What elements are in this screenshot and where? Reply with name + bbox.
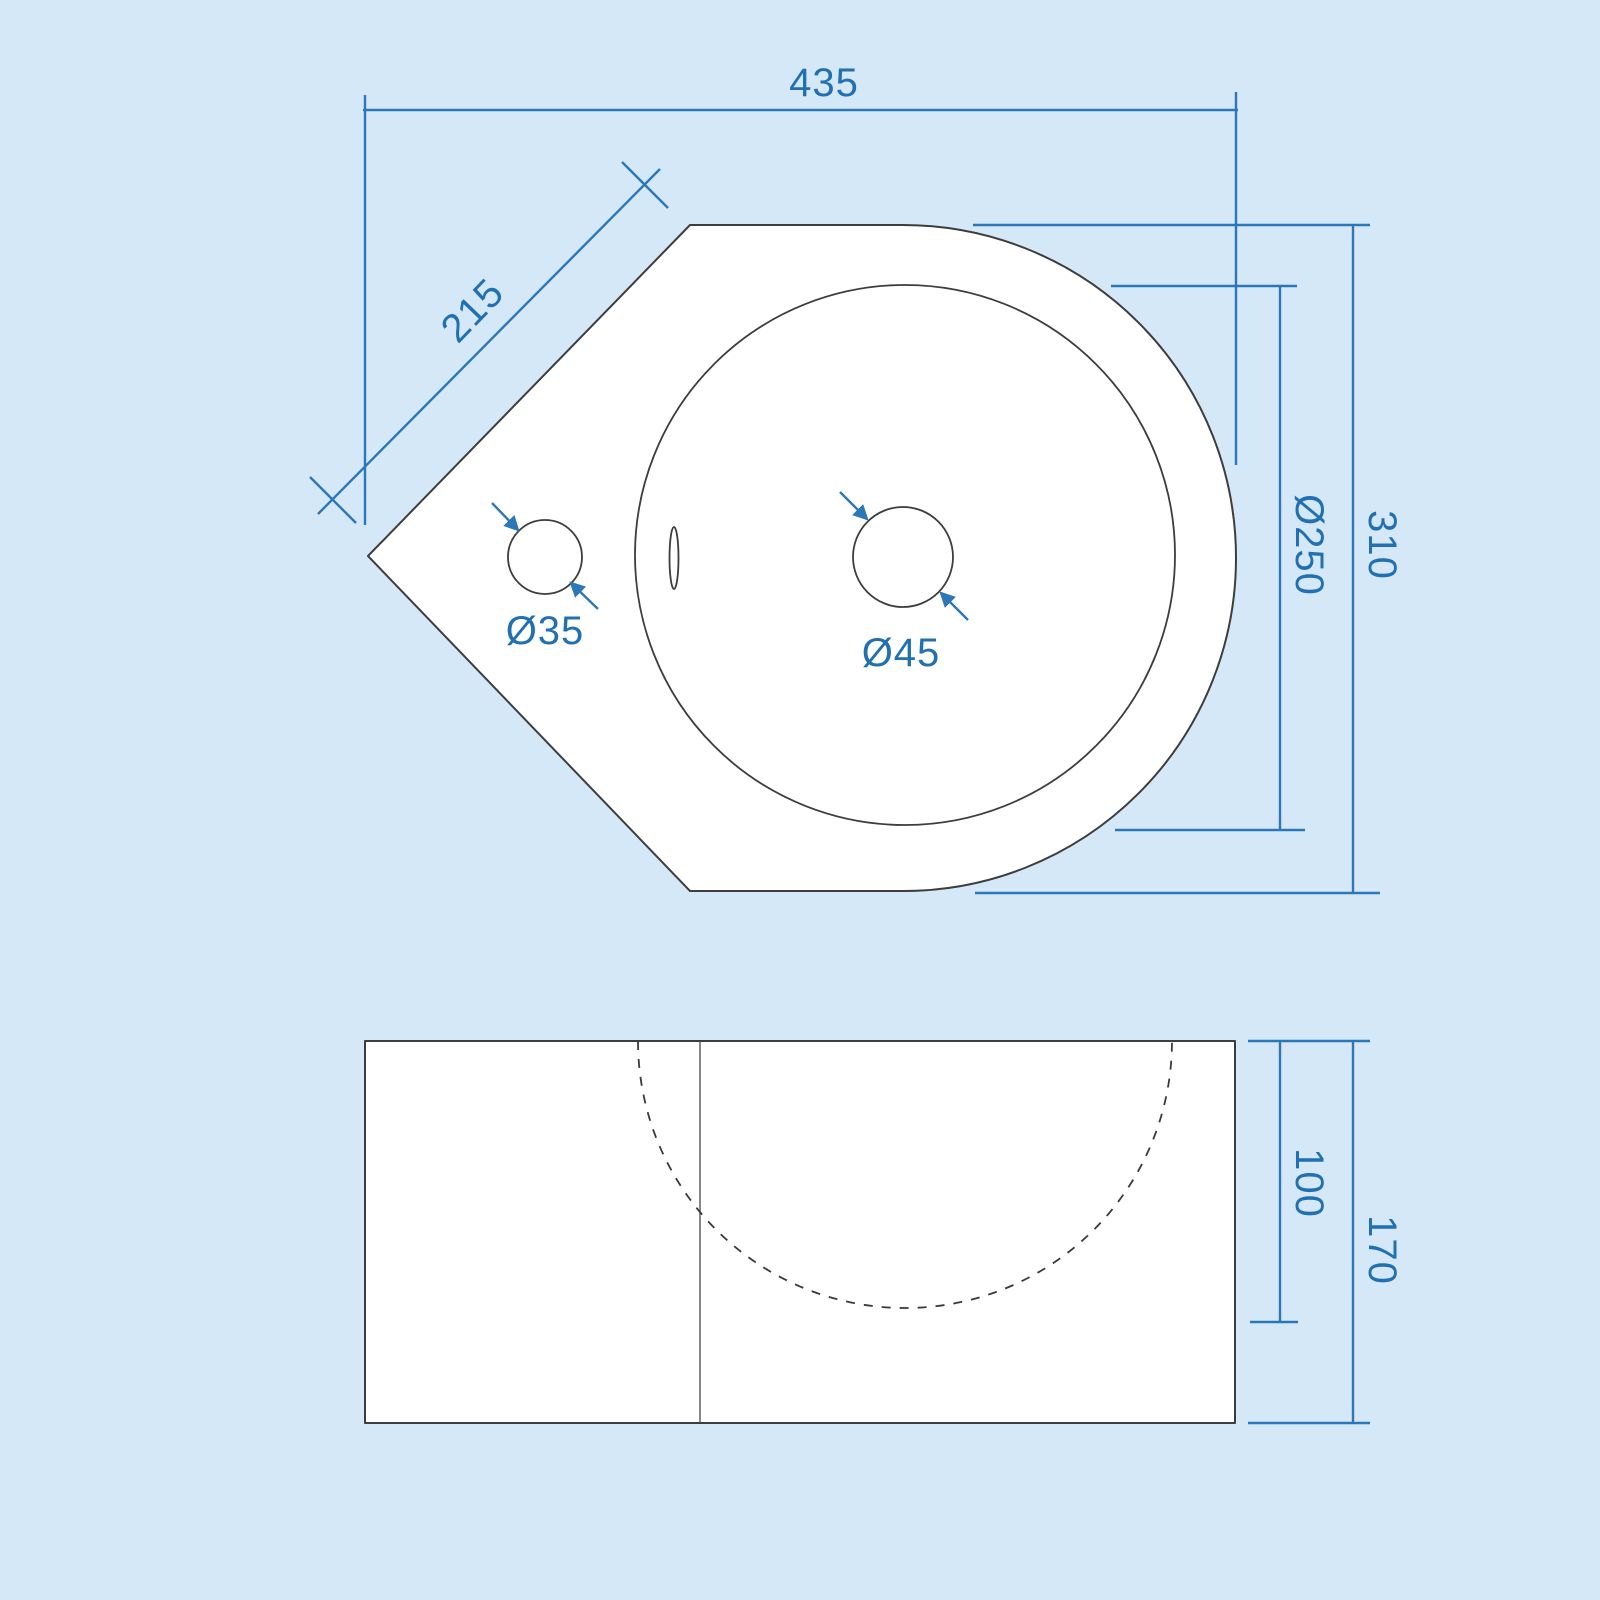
basin-dimension-drawing: 435 215 Ø250 310 Ø35 [0,0,1600,1600]
tap-hole [508,520,582,594]
overflow-slot [670,527,679,589]
dim-label-435: 435 [789,61,859,105]
waste-hole [853,507,953,607]
dim-label-45: Ø45 [862,631,941,675]
dim-label-170: 170 [1360,1215,1404,1285]
basin-front-body [365,1041,1235,1423]
dim-label-310: 310 [1360,510,1404,580]
drawing-svg: 435 215 Ø250 310 Ø35 [0,0,1600,1600]
dim-label-35: Ø35 [506,609,585,653]
dim-label-250: Ø250 [1287,494,1331,596]
dim-label-100: 100 [1287,1148,1331,1218]
